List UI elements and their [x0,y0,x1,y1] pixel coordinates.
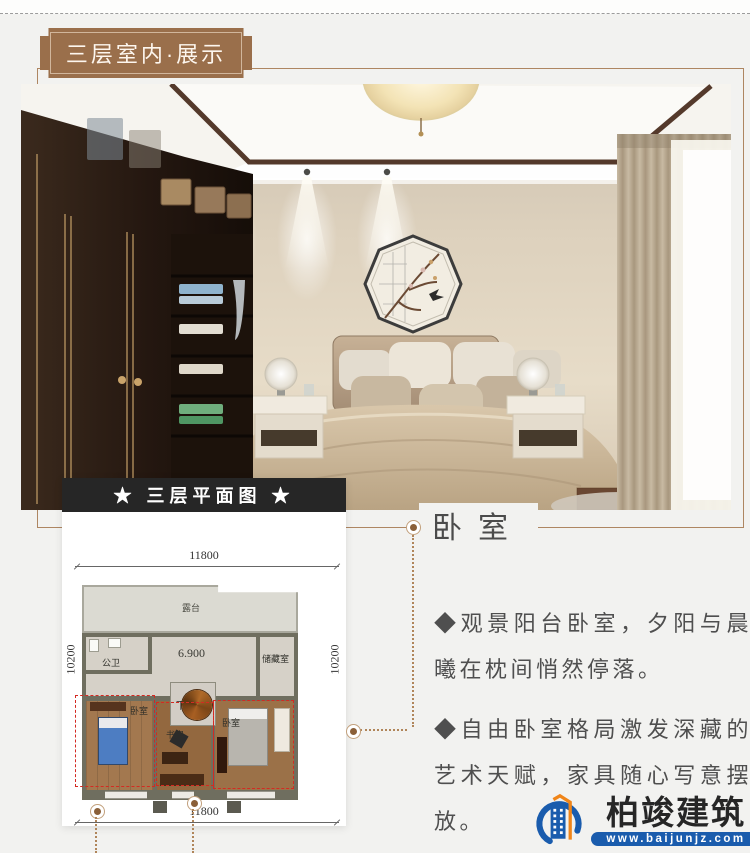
brand-website: www.baijunjz.com [591,832,750,846]
description-paragraph: ◆观景阳台卧室，夕阳与晨曦在枕间悄然停落。 [434,601,750,693]
elevation-label: 6.900 [178,646,205,661]
curtains [617,134,731,510]
highlight-box-bedroom-right [213,700,294,789]
leader-dot [187,796,202,811]
section-marker-dot [406,520,421,535]
storage-label: 储藏室 [262,652,289,665]
brand-logo: 柏竣建筑 www.baijunjz.com [531,791,750,851]
terrace-label: 露台 [182,601,200,614]
leader-line [95,817,97,853]
highlight-box-study [156,702,214,786]
leader-line [192,809,194,853]
floor-plan-title-bar: ★ 三层平面图 ★ [62,478,346,512]
section-badge: 三层室内·展示 [40,28,252,78]
dim-top-line [75,566,339,567]
highlight-box-bedroom-left [75,695,155,787]
section-title: 卧室 [419,503,538,547]
leader-dot [90,804,105,819]
dim-right-label: 10200 [328,645,343,675]
plan-window [105,791,147,799]
plan-window [227,791,275,799]
dim-left-label: 10200 [64,645,79,675]
floor-plan-card: ★ 三层平面图 ★ 11800 10200 10200 露台 [62,478,346,826]
brand-logo-icon [531,791,587,851]
section-connector-vertical [412,535,414,727]
wardrobe [21,110,253,510]
floor-plan-drawing: 11800 10200 10200 露台 [62,512,346,826]
badge-label: 三层室内·展示 [66,37,226,69]
dim-bottom-line [75,822,339,823]
plan-terrace: 露台 [82,585,298,633]
sink-icon [108,638,121,648]
wall-art-octagon-icon [365,236,461,332]
bedroom-photo [21,84,731,510]
brand-name: 柏竣建筑 [606,796,746,831]
bath-label: 公卫 [102,656,120,669]
page: 三层室内·展示 [0,0,750,853]
plan-marker-dot [346,724,361,739]
section-connector-horizontal [360,729,407,731]
toilet-icon [89,639,99,652]
dim-top-label: 11800 [62,548,346,563]
floor-plan-title: ★ 三层平面图 ★ [113,482,294,508]
top-dotted-divider [0,0,750,14]
